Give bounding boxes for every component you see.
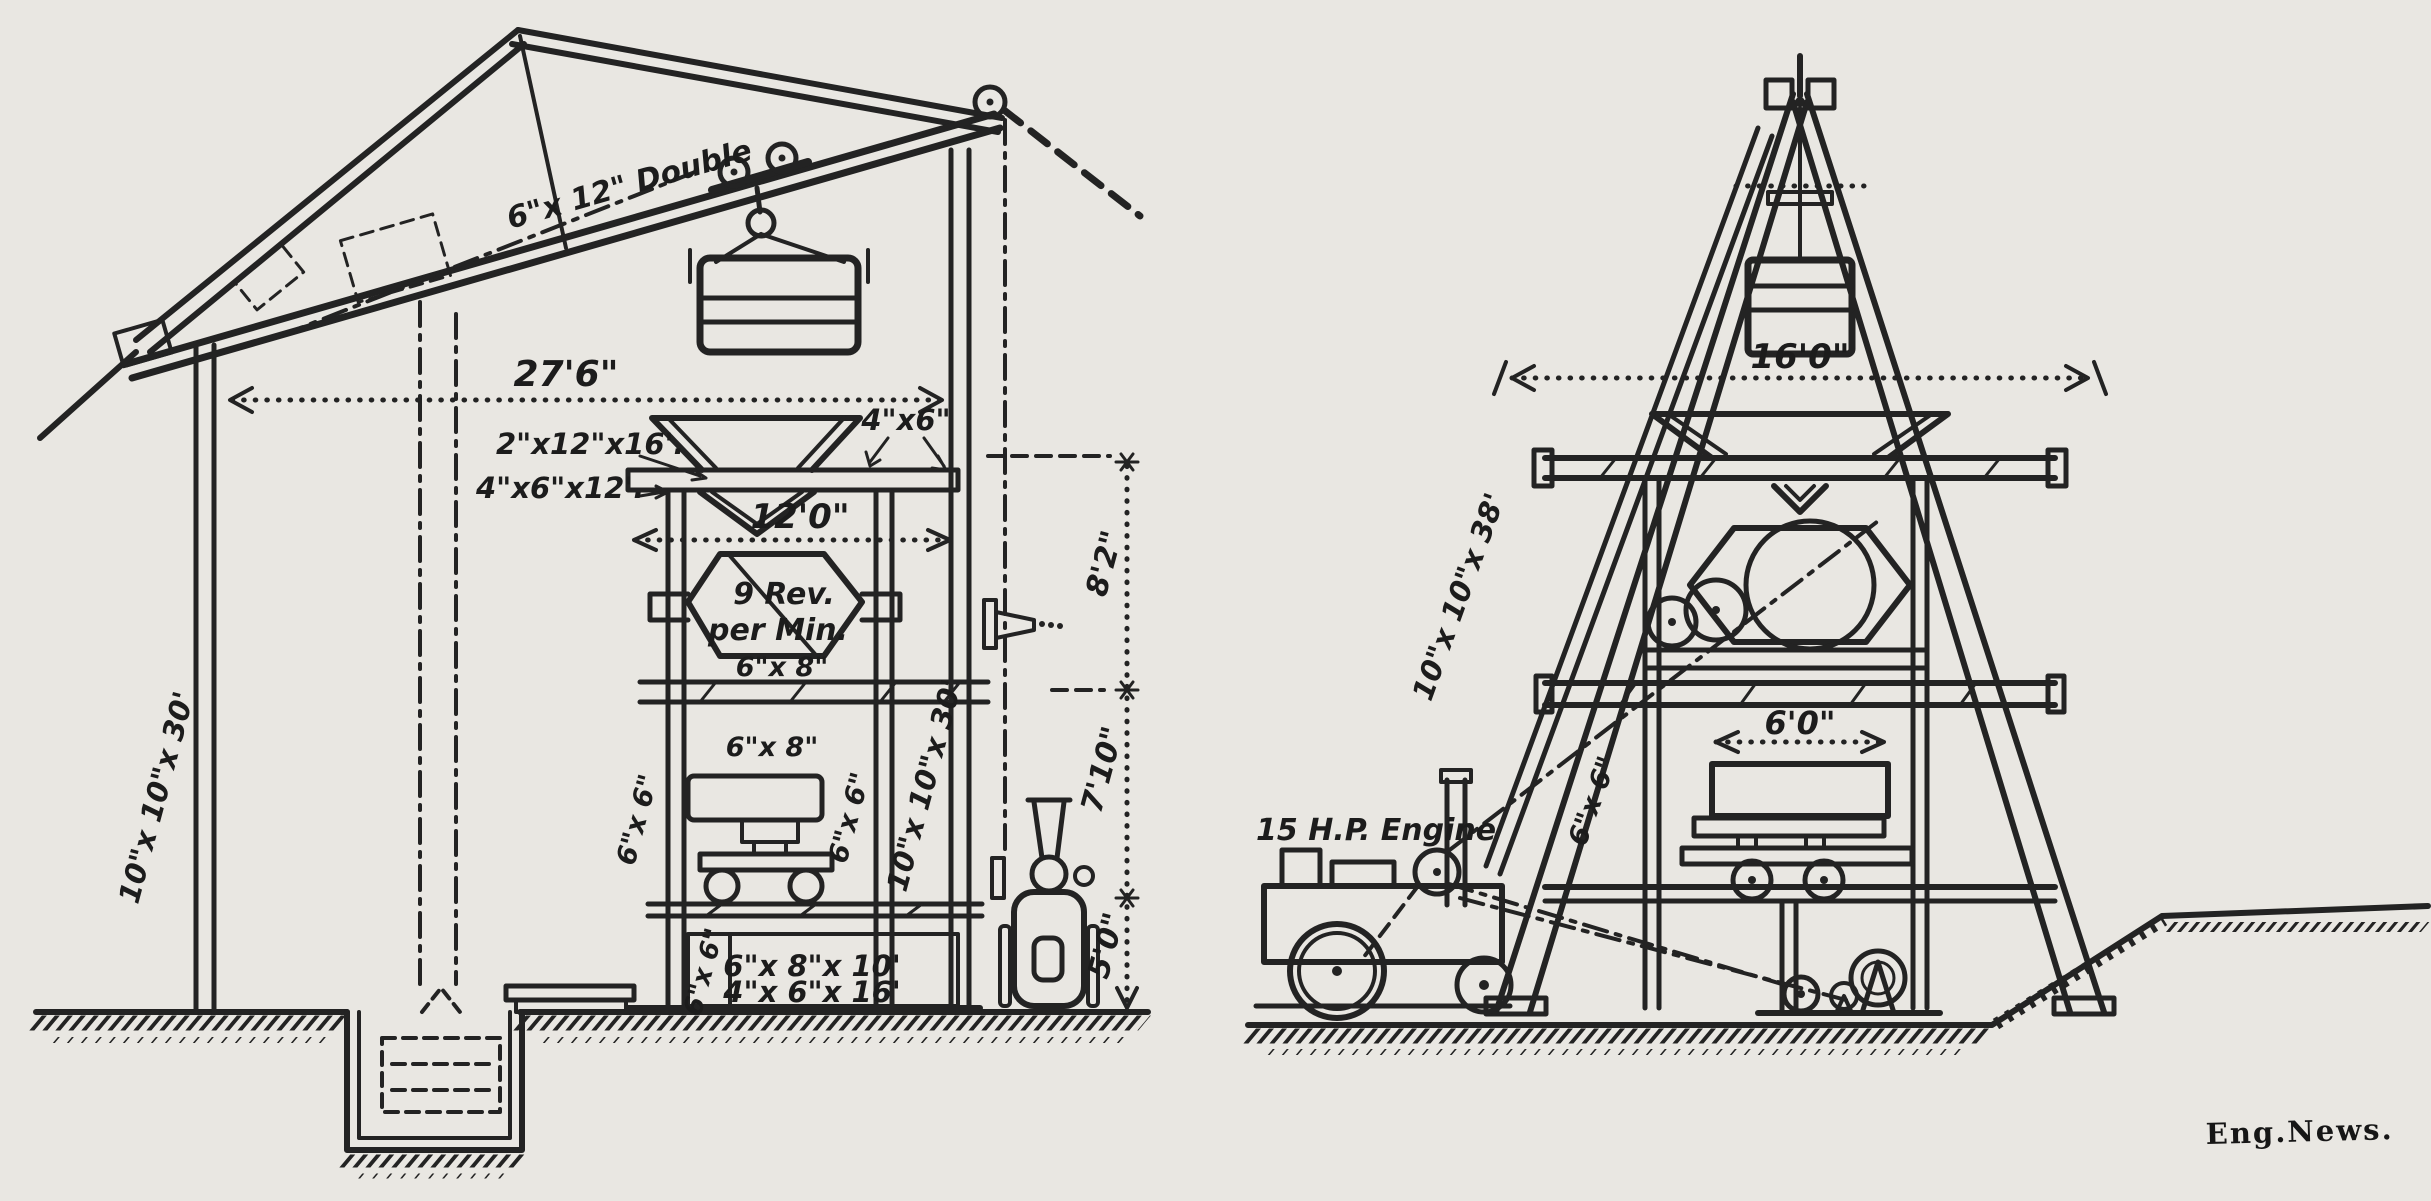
post-size-small-left: 6"x 6" [611,771,665,868]
sill-size-line2: 4"x 6"x 16' [722,975,900,1009]
dim-5-0: 5'0" [1081,909,1132,982]
apex-pin [1795,97,1805,107]
dim-12-0: 12'0" [750,497,849,537]
brace-size-label: 6"x 6" [1563,752,1624,850]
left-wall-post [196,345,214,1012]
girt-size-label: 6"x 8" [726,732,819,763]
rigging-ropes [1447,518,1882,1000]
ground-right [1236,906,2428,1052]
weighing-cart [688,776,832,902]
callout-joist: 4"x6"x12'. [475,471,644,505]
ground-left [0,1012,1148,1176]
mixer-drum-right [1648,521,1910,649]
right-elevation: 16'0" 10"x 10"x 38' 6'0" 6"x 6" 15 H.P. … [1236,56,2428,1052]
shaft-size-label: 6"x 8" [736,652,829,683]
dimensions-right [1494,362,2106,752]
charging-cart [1682,764,1912,899]
guy-cable-left [40,352,136,438]
derrick-hopper [1534,414,2066,512]
derrick-bucket [1748,108,1852,354]
boiler [992,800,1098,1006]
post-size-small-right: 6"x 6" [823,769,877,866]
callout-arrow-cap [866,438,946,470]
right-wall-post [951,150,969,1012]
plant-elevation-diagram: 6"x 12" Double 27'6" 2"x12"x16'. 4"x6"x1… [0,0,2431,1201]
tower-post-left [668,492,684,1008]
dim-27-6: 27'6" [514,354,619,395]
mixer-speed-line1: 9 Rev. [733,577,835,612]
scale-platform [506,986,634,1000]
dim-16-0: 16'0" [1750,337,1849,377]
base-sheaves [1784,951,1905,1013]
dim-6-0: 6'0" [1765,704,1836,742]
callout-plank: 2"x12"x16'. [496,427,684,461]
stage-post-right [1913,478,1927,1008]
cableway-track [40,87,1140,984]
left-elevation: 6"x 12" Double 27'6" 2"x12"x16'. 4"x6"x1… [0,30,1148,1176]
publication-credit: Eng.News. [2205,1112,2394,1151]
ratchet-screw [984,600,1063,648]
engine-label: 15 H.P. Engine [1256,813,1496,848]
dim-7-10: 7'10" [1075,723,1131,817]
a-frame-leg-left [1496,94,1807,1012]
wall-post-size-left: 10"x 10"x 30' [112,688,201,907]
engraved-plate: 6"x 12" Double 27'6" 2"x12"x16'. 4"x6"x1… [0,0,2431,1201]
guy-cable-right [1004,110,1140,216]
leg-size-label: 10"x 10"x 38' [1405,488,1511,704]
cableway-bucket [700,258,858,352]
right-rafter [512,30,1002,132]
dim-8-2: 8'2" [1079,527,1130,600]
callout-cap: 4"x6" [860,403,950,437]
building-frame [114,30,1002,1012]
mixer-speed-line2: per Min. [707,613,848,648]
tower-post-right [876,492,892,1008]
stage-post-left [1645,478,1659,1008]
